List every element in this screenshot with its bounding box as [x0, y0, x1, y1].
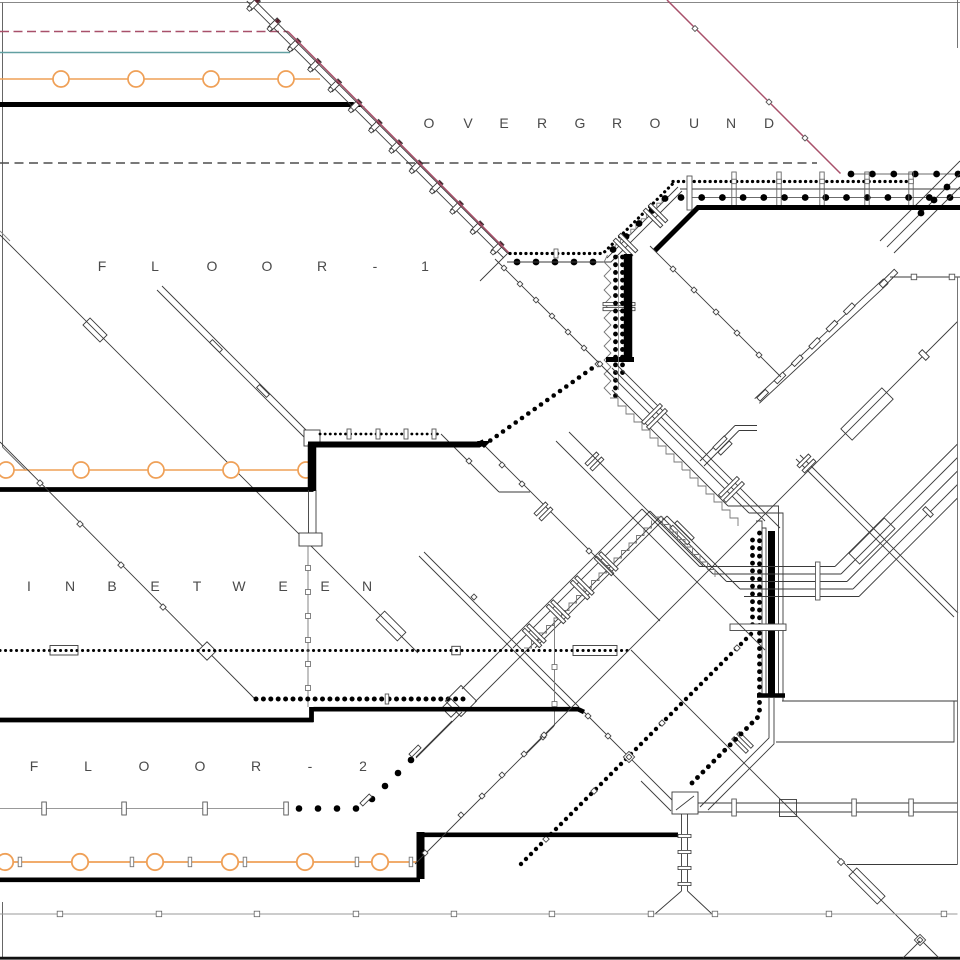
svg-text:O: O	[207, 258, 218, 274]
svg-text:L: L	[84, 758, 92, 774]
svg-text:O: O	[424, 115, 435, 131]
svg-text:U: U	[689, 115, 699, 131]
svg-text:V: V	[463, 115, 473, 131]
svg-text:E: E	[278, 578, 287, 594]
svg-text:B: B	[107, 578, 116, 594]
svg-text:-: -	[373, 258, 378, 274]
svg-text:O: O	[139, 758, 150, 774]
svg-text:D: D	[764, 115, 774, 131]
svg-text:G: G	[575, 115, 586, 131]
svg-text:O: O	[650, 115, 661, 131]
svg-text:T: T	[193, 578, 202, 594]
svg-text:R: R	[317, 258, 327, 274]
svg-text:E: E	[150, 578, 159, 594]
svg-text:R: R	[612, 115, 622, 131]
svg-text:-: -	[308, 758, 313, 774]
svg-text:O: O	[262, 258, 273, 274]
svg-text:W: W	[232, 578, 246, 594]
svg-text:E: E	[320, 578, 329, 594]
svg-text:1: 1	[421, 258, 429, 274]
svg-text:R: R	[537, 115, 547, 131]
svg-text:N: N	[726, 115, 736, 131]
svg-text:L: L	[151, 258, 159, 274]
svg-text:E: E	[499, 115, 508, 131]
svg-text:2: 2	[359, 758, 367, 774]
svg-text:R: R	[251, 758, 261, 774]
svg-text:N: N	[362, 578, 372, 594]
svg-text:N: N	[65, 578, 75, 594]
svg-text:F: F	[30, 758, 39, 774]
svg-text:F: F	[98, 258, 107, 274]
svg-text:O: O	[195, 758, 206, 774]
svg-text:I: I	[27, 578, 31, 594]
